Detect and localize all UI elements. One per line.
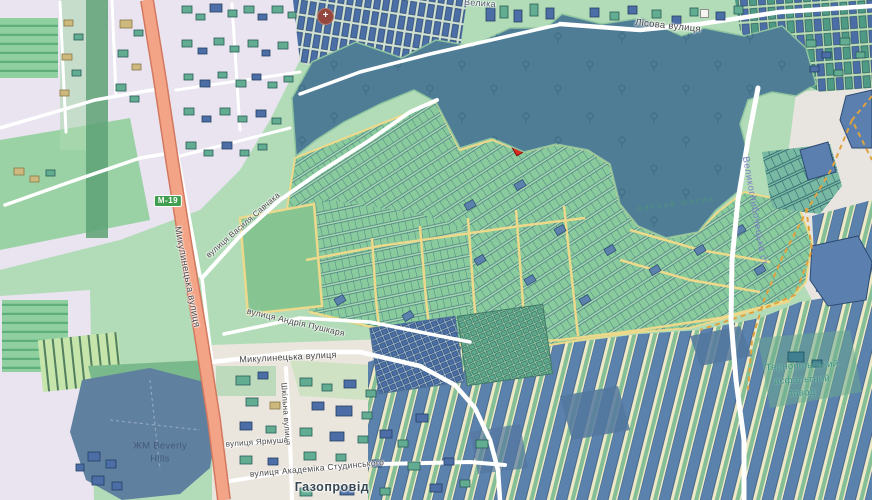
building-poi-icon[interactable] xyxy=(700,9,709,18)
map-canvas[interactable]: Велика Лісова вулиця Великоглибочецька с… xyxy=(0,0,872,500)
place-label-beverly-line2: Hills xyxy=(150,454,169,465)
poi-label-asphalt-plant-line3: завод xyxy=(788,387,815,399)
place-label-gazoprovid: Газопровід xyxy=(295,480,369,494)
place-label-beverly-line1: ЖМ Beverly xyxy=(133,441,187,452)
road-shield-m19: М-19 xyxy=(154,195,182,207)
hospital-cross-icon[interactable]: + xyxy=(317,8,334,25)
map-graphics xyxy=(0,0,872,500)
